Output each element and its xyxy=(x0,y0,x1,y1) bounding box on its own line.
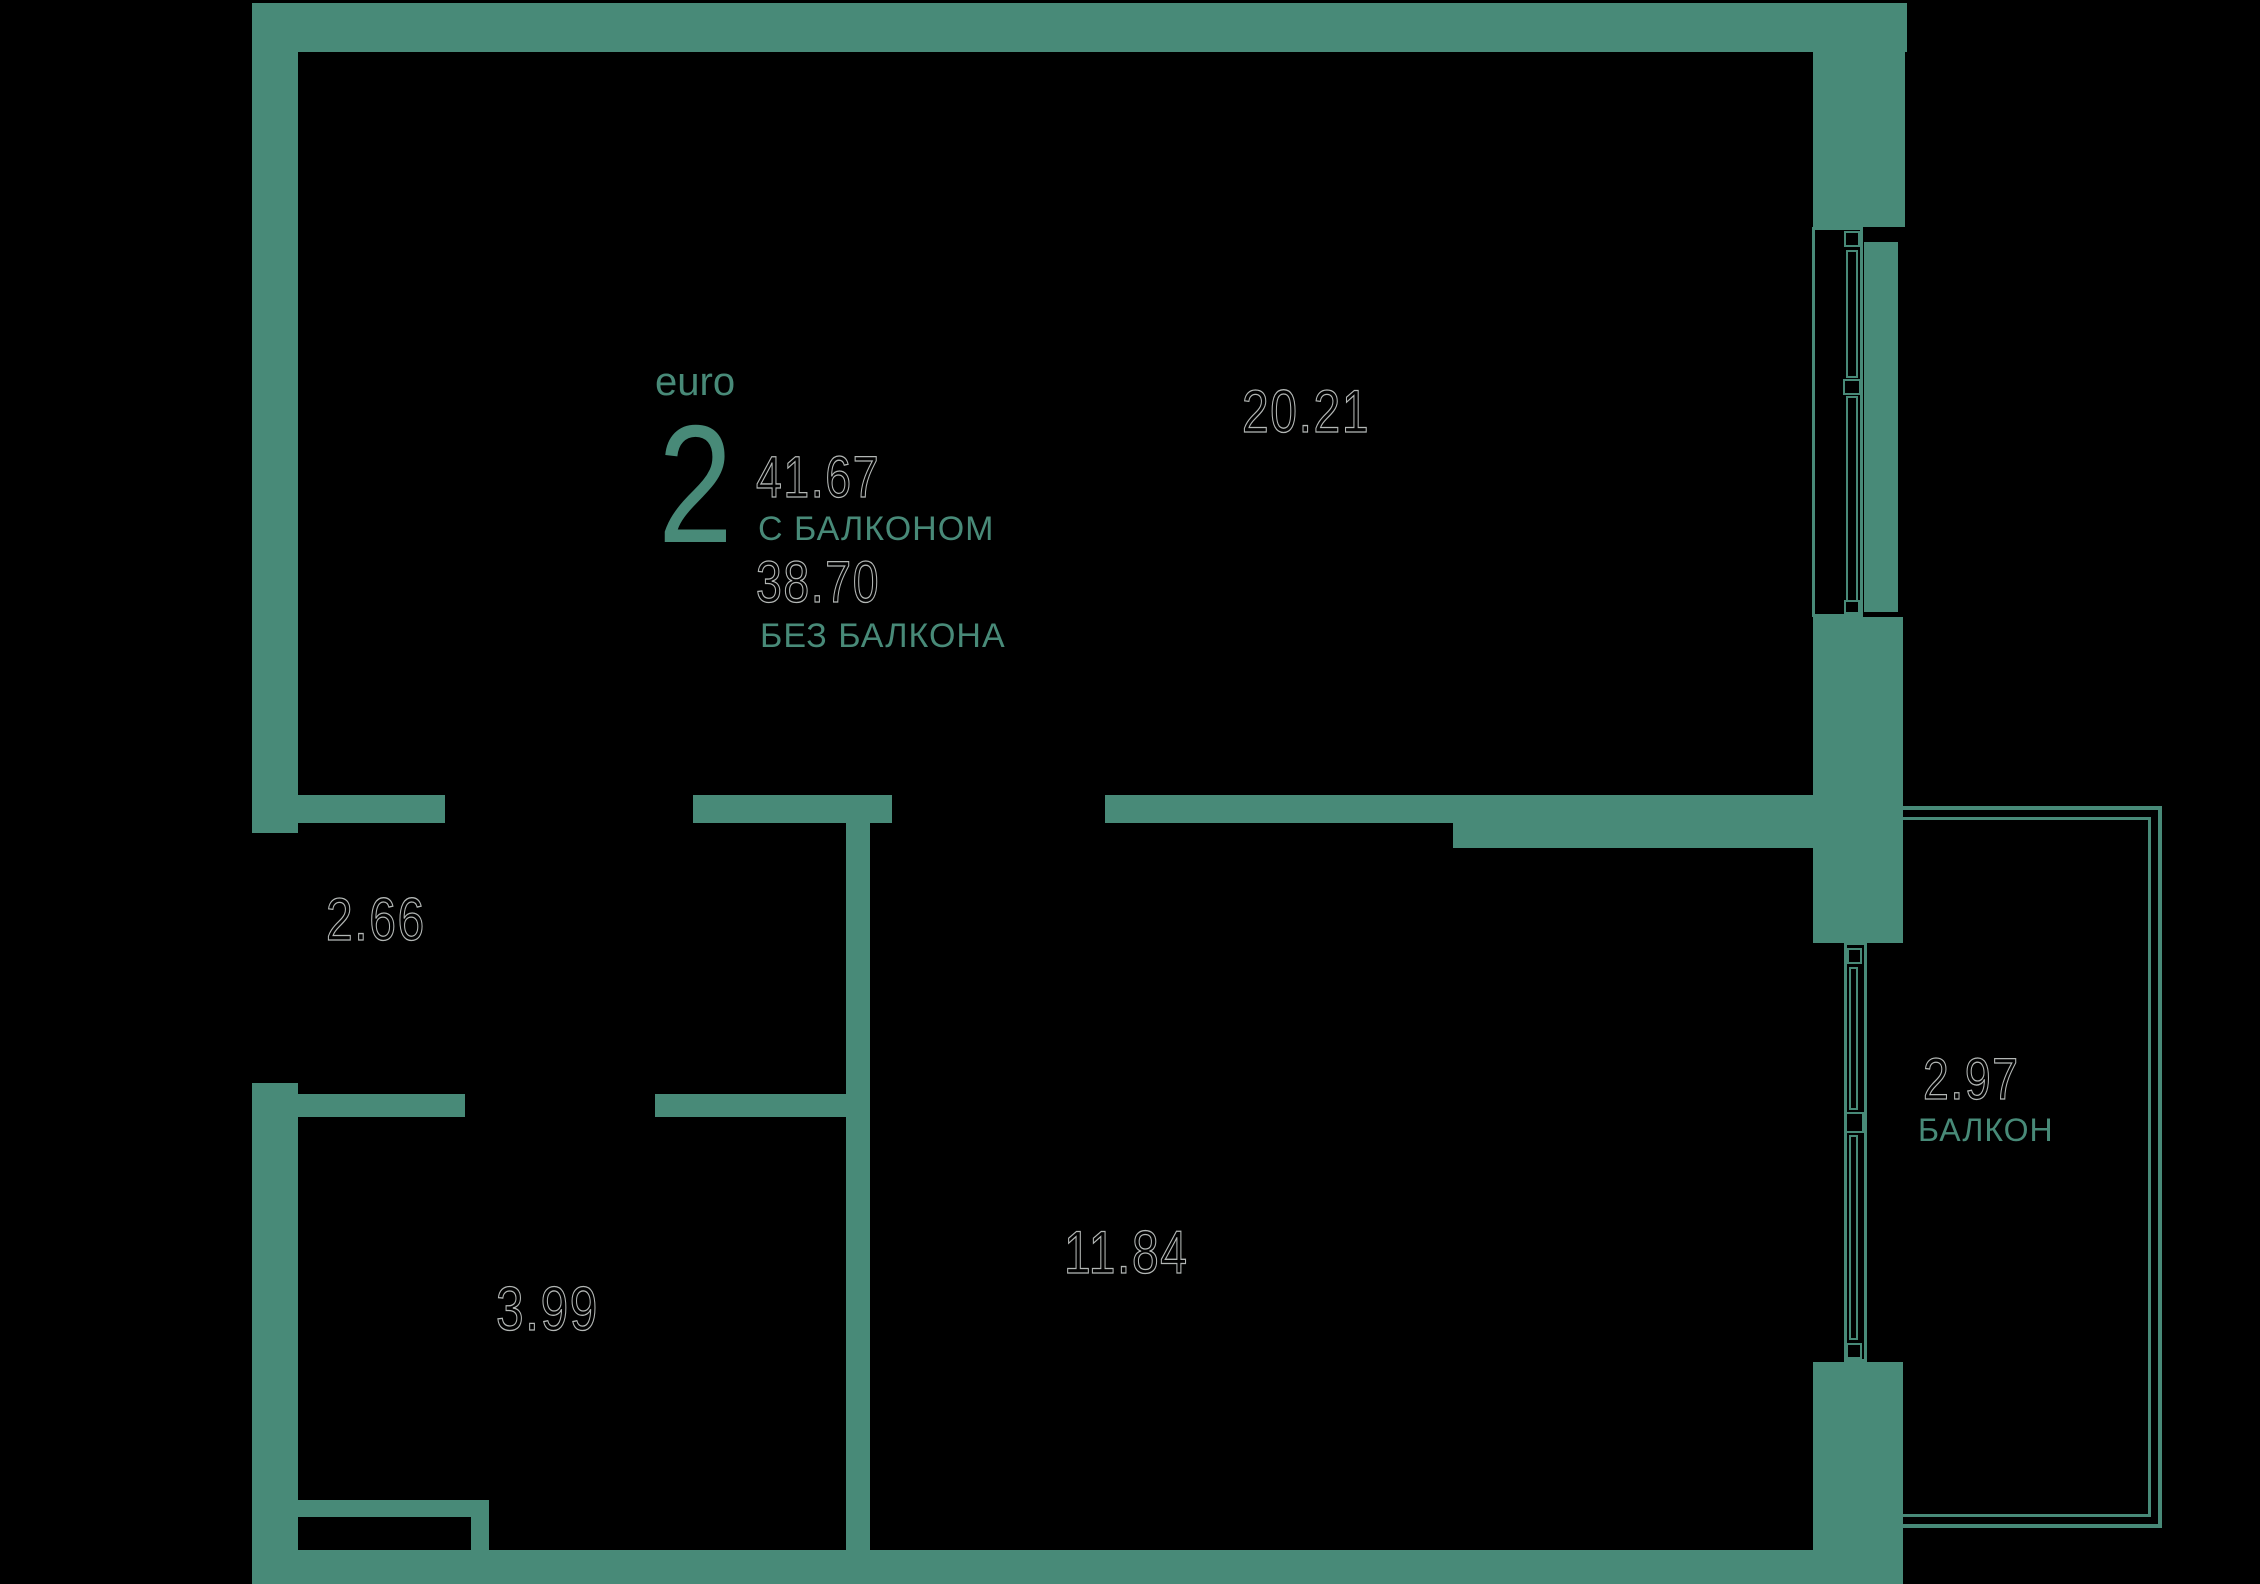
area-without-balcony: 38.70 xyxy=(756,554,880,612)
room-area-hallway: 2.66 xyxy=(326,890,426,950)
wall-middle-segment-b xyxy=(693,795,892,823)
room-area-balcony: 2.97 xyxy=(1923,1051,2020,1109)
window-balcony-door-mullion xyxy=(1845,1112,1864,1133)
room-area-kitchen-living: 20.21 xyxy=(1242,382,1370,442)
wall-top-exterior xyxy=(252,3,1907,52)
wall-hallway-segment-b xyxy=(655,1094,846,1117)
room-area-bathroom: 3.99 xyxy=(496,1279,599,1341)
wall-left-exterior-upper xyxy=(252,52,298,833)
balcony-label: БАЛКОН xyxy=(1918,1114,2054,1146)
wall-right-exterior-upper xyxy=(1813,52,1905,227)
balcony-railing-inner xyxy=(1903,817,2151,1517)
room-area-bedroom: 11.84 xyxy=(1064,1223,1189,1283)
floor-plan: euro 2 41.67 С БАЛКОНОМ 38.70 БЕЗ БАЛКОН… xyxy=(0,0,2260,1584)
wall-left-exterior-lower xyxy=(252,1083,298,1584)
area-with-balcony: 41.67 xyxy=(756,449,880,507)
window-balcony-door-bottom-cap xyxy=(1846,1343,1862,1359)
wall-right-exterior-lower xyxy=(1813,1362,1903,1584)
wall-middle-segment-c xyxy=(1105,795,1453,823)
window-kitchen-living-glazing-lower xyxy=(1846,396,1858,602)
wall-middle-segment-thick xyxy=(1453,795,1813,848)
window-kitchen-living-glazing-upper xyxy=(1846,250,1858,378)
window-kitchen-living-sill xyxy=(1864,242,1898,612)
wall-bottom-exterior xyxy=(252,1550,1903,1584)
with-balcony-label: С БАЛКОНОМ xyxy=(758,512,995,546)
wall-niche-vertical xyxy=(471,1500,489,1557)
rooms-count: 2 xyxy=(658,400,733,568)
window-balcony-door-glazing-lower xyxy=(1849,1135,1858,1340)
wall-middle-segment-a xyxy=(298,795,445,823)
window-balcony-door-top-cap xyxy=(1847,948,1862,964)
window-kitchen-living-sash-bottom-cap xyxy=(1844,600,1860,614)
without-balcony-label: БЕЗ БАЛКОНА xyxy=(760,619,1006,653)
wall-right-exterior-mid xyxy=(1813,617,1903,943)
window-kitchen-living-mullion xyxy=(1843,379,1861,395)
window-balcony-door-glazing-upper xyxy=(1849,967,1858,1110)
wall-niche-horizontal xyxy=(298,1500,489,1517)
wall-partition-vertical xyxy=(846,823,870,1550)
window-kitchen-living-sash-top-cap xyxy=(1844,231,1860,247)
wall-hallway-segment-a xyxy=(298,1094,465,1117)
